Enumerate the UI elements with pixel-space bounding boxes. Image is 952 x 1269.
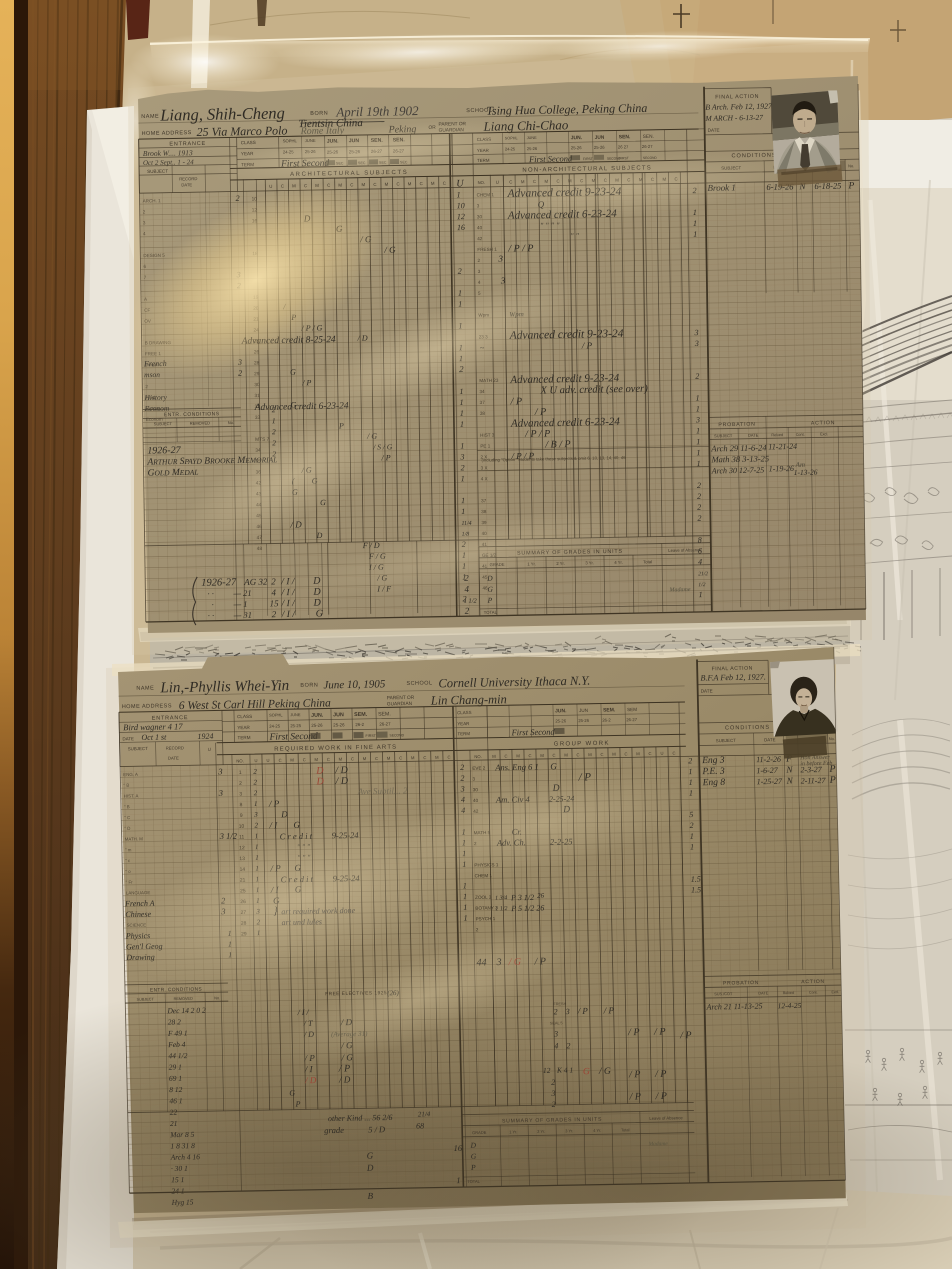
svg-text:28 2: 28 2: [168, 1017, 182, 1026]
svg-text:· 30 1: · 30 1: [171, 1164, 188, 1173]
svg-text:26-2: 26-2: [355, 722, 364, 727]
svg-text:25-25: 25-25: [290, 723, 301, 728]
svg-text:1: 1: [696, 394, 700, 403]
svg-text:3: 3: [695, 415, 700, 424]
svg-text:Arch 30 12-7-25: Arch 30 12-7-25: [711, 466, 765, 476]
svg-text:3: 3: [460, 784, 465, 793]
svg-text:1: 1: [696, 437, 700, 446]
svg-text:2: 2: [552, 1100, 556, 1109]
svg-text:M: M: [385, 182, 389, 187]
svg-text:31: 31: [254, 393, 260, 399]
svg-text:" B: " B: [124, 804, 130, 809]
svg-text:15 1: 15 1: [171, 1175, 184, 1184]
svg-text:2: 2: [688, 756, 692, 765]
svg-text:P: P: [829, 775, 836, 786]
svg-text:37: 37: [480, 400, 486, 405]
svg-text:C: C: [396, 181, 399, 186]
svg-text:Dec 14 2 0 2: Dec 14 2 0 2: [166, 1006, 206, 1016]
svg-text:C: C: [327, 757, 330, 762]
svg-text:other Kind ... 56 2/6: other Kind ... 56 2/6: [328, 1113, 393, 1123]
svg-text:P.E. 3: P.E. 3: [701, 767, 725, 777]
svg-text:2-11-27: 2-11-27: [801, 776, 827, 785]
svg-text:JUN: JUN: [333, 712, 344, 718]
svg-text:1: 1: [239, 770, 242, 776]
svg-text:SUBJECT: SUBJECT: [137, 997, 155, 1001]
svg-text:1: 1: [697, 459, 701, 468]
svg-text:B Arch. Feb 12, 1927: B Arch. Feb 12, 1927: [705, 102, 773, 112]
svg-text:History: History: [143, 393, 167, 402]
svg-text:SUS./COT: SUS./COT: [714, 992, 733, 996]
svg-text:JUN: JUN: [595, 135, 605, 141]
svg-text:SEM: SEM: [627, 707, 637, 712]
svg-text:Madame: Madame: [648, 1141, 669, 1147]
svg-text:G: G: [289, 1089, 295, 1098]
svg-text:/ P: / P: [679, 1030, 692, 1041]
svg-text:First Second: First Second: [510, 727, 555, 738]
svg-text:NAME: NAME: [136, 685, 154, 691]
svg-text:RECORD: RECORD: [166, 745, 184, 750]
svg-text:48: 48: [257, 546, 263, 552]
svg-text:3: 3: [218, 788, 223, 798]
svg-text:M: M: [612, 752, 616, 757]
svg-text:PROBATION: PROBATION: [723, 980, 759, 987]
svg-text:Tientsin China: Tientsin China: [298, 117, 363, 130]
svg-text:/ P: / P: [338, 1063, 351, 1074]
svg-text:NO.: NO.: [478, 180, 486, 185]
svg-text:25-26: 25-26: [578, 718, 589, 723]
svg-text:ACTION: ACTION: [801, 979, 825, 985]
svg-text:JUN.: JUN.: [555, 708, 567, 714]
svg-text:2: 2: [695, 372, 699, 381]
svg-text:2-3-27: 2-3-27: [800, 765, 822, 774]
svg-text:June 10, 1905: June 10, 1905: [323, 678, 386, 691]
svg-text:/ P: / P: [577, 1006, 589, 1016]
svg-text:26 27: 26 27: [618, 144, 629, 149]
svg-text:Cont.: Cont.: [796, 433, 805, 437]
svg-text:TOTAL: TOTAL: [484, 610, 498, 615]
svg-text:Arch 4 16: Arch 4 16: [170, 1152, 201, 1162]
svg-text:C: C: [420, 181, 423, 186]
svg-text:3: 3: [550, 1089, 555, 1098]
svg-text:Eng 8: Eng 8: [702, 778, 726, 788]
svg-text:4 Yr.: 4 Yr.: [593, 1128, 601, 1133]
svg-text:JUNE: JUNE: [290, 712, 301, 717]
svg-text:11-2-26: 11-2-26: [756, 755, 781, 764]
svg-text:1 8 31 8: 1 8 31 8: [170, 1141, 195, 1150]
svg-text:U: U: [660, 751, 663, 756]
svg-text:SEAL 5: SEAL 5: [550, 1021, 563, 1025]
svg-text:SCHOOL: SCHOOL: [406, 680, 432, 686]
svg-text:No.: No.: [848, 163, 854, 168]
svg-text:MATH. M: MATH. M: [125, 836, 144, 841]
svg-text:— 31: — 31: [233, 610, 252, 620]
svg-text:1 3/4: 1 3/4: [495, 894, 507, 901]
svg-text:FINAL ACTION: FINAL ACTION: [712, 666, 753, 673]
svg-text:FRESH: FRESH: [553, 1002, 566, 1006]
svg-text:Madame: Madame: [668, 587, 690, 593]
svg-text:DESIGN 5: DESIGN 5: [143, 253, 165, 258]
svg-text:DATE: DATE: [764, 737, 776, 742]
svg-text:2: 2: [272, 427, 276, 436]
svg-text:Eng 3: Eng 3: [701, 756, 725, 766]
svg-text:C: C: [423, 755, 426, 760]
svg-text:M: M: [314, 757, 318, 762]
svg-text:46 1: 46 1: [169, 1096, 182, 1105]
svg-text:16: 16: [457, 223, 465, 232]
svg-text:1: 1: [460, 409, 464, 418]
svg-text:N: N: [786, 776, 794, 786]
svg-text:SUBJECT: SUBJECT: [714, 433, 733, 438]
svg-text:Ave Subtil... 2: Ave Subtil... 2: [357, 785, 408, 796]
svg-text:GRADE: GRADE: [472, 1130, 487, 1135]
svg-text:·: ·: [212, 599, 214, 609]
svg-text:P: P: [487, 596, 493, 605]
svg-text:" o: " o: [125, 869, 131, 874]
svg-text:24-25: 24-25: [269, 723, 280, 728]
svg-text:/ P: / P: [654, 1069, 667, 1080]
svg-text:DATE: DATE: [701, 688, 713, 693]
svg-text:1-19-26: 1-19-26: [769, 464, 794, 473]
svg-text:DATE: DATE: [181, 182, 192, 187]
svg-text:1: 1: [689, 789, 693, 798]
svg-text:PSYCH 1: PSYCH 1: [476, 916, 496, 921]
svg-text:2: 2: [238, 369, 242, 378]
svg-text:25-26: 25-26: [571, 145, 582, 150]
svg-text:PROBATION: PROBATION: [718, 422, 755, 429]
svg-text:3: 3: [239, 791, 242, 797]
svg-text:46: 46: [482, 586, 488, 591]
svg-text:Brook W.... 1913: Brook W.... 1913: [143, 148, 193, 158]
svg-text:/ P / P: / P / P: [524, 428, 550, 439]
svg-text:1: 1: [461, 474, 465, 483]
svg-text:U: U: [254, 758, 257, 763]
svg-text:B.F.A Feb 12, 1927.: B.F.A Feb 12, 1927.: [700, 672, 766, 682]
svg-text:Math 38 3-13-25: Math 38 3-13-25: [710, 453, 769, 464]
svg-text:1: 1: [696, 448, 700, 457]
svg-text:HIST 3: HIST 3: [480, 432, 495, 437]
svg-text:C: C: [552, 753, 555, 758]
svg-text:C: C: [375, 756, 378, 761]
svg-text:2: 2: [697, 514, 701, 523]
svg-text:3: 3: [553, 1029, 558, 1038]
svg-text:1 1/2: 1 1/2: [495, 906, 507, 912]
svg-text:FIRST: FIRST: [583, 157, 593, 161]
svg-text:33: 33: [255, 415, 261, 421]
svg-text:2: 2: [465, 606, 470, 616]
svg-text:1: 1: [254, 800, 258, 808]
svg-text:25-26: 25-26: [527, 146, 538, 151]
svg-text:C: C: [303, 757, 306, 762]
svg-text:/ I /: / I /: [281, 610, 297, 620]
svg-text:M: M: [435, 755, 439, 760]
svg-text:26-27: 26-27: [642, 144, 653, 149]
svg-text:1: 1: [699, 590, 703, 599]
svg-text:M: M: [361, 182, 365, 187]
svg-text:NO.: NO.: [474, 754, 482, 759]
svg-text:C: C: [576, 752, 579, 757]
svg-text:JUN: JUN: [579, 708, 588, 713]
svg-text:G: G: [550, 761, 557, 771]
svg-text:mson: mson: [144, 370, 160, 379]
svg-text:12: 12: [543, 1066, 551, 1075]
svg-text:/ D: / D: [334, 765, 348, 776]
svg-text:2: 2: [461, 463, 465, 472]
svg-text:D: D: [366, 1163, 374, 1173]
svg-text:P: P: [847, 181, 854, 191]
svg-text:2: 2: [271, 576, 276, 586]
svg-text:2: 2: [235, 194, 239, 203]
svg-text:C: C: [624, 751, 627, 756]
svg-text:C: C: [351, 756, 354, 761]
svg-text:SUBJECT: SUBJECT: [154, 421, 173, 426]
svg-text:NO.: NO.: [236, 758, 244, 763]
svg-text:YEAR: YEAR: [237, 725, 250, 730]
svg-text:grade: grade: [324, 1125, 344, 1135]
svg-text:BORN: BORN: [300, 682, 318, 688]
svg-text:G: G: [316, 608, 323, 619]
svg-text:29: 29: [254, 371, 260, 377]
svg-text:Relved: Relved: [771, 433, 783, 437]
svg-text:3 Yr.: 3 Yr.: [565, 1128, 573, 1133]
svg-text:C: C: [373, 182, 376, 187]
svg-text:" Fr: " Fr: [126, 880, 134, 885]
svg-text:ENTRANCE: ENTRANCE: [169, 141, 206, 148]
svg-text:JUN.: JUN.: [571, 135, 583, 141]
svg-text:1924: 1924: [197, 732, 213, 741]
svg-text:CLASS: CLASS: [241, 140, 256, 145]
svg-text:SUBJECT: SUBJECT: [147, 169, 168, 174]
svg-text:AG 32: AG 32: [243, 577, 268, 587]
svg-text:ZOOL 3: ZOOL 3: [475, 895, 492, 900]
svg-text:FRESH 1: FRESH 1: [477, 247, 497, 252]
svg-text:SECOND: SECOND: [389, 733, 404, 737]
svg-text:25-26: 25-26: [594, 145, 605, 150]
svg-text:C: C: [399, 755, 402, 760]
svg-text:3: 3: [217, 766, 222, 776]
svg-text:TERM: TERM: [237, 735, 250, 740]
svg-text:Excl.: Excl.: [820, 432, 828, 436]
svg-text:2: 2: [254, 821, 258, 829]
svg-text:Advanced credit 6-23-24: Advanced credit 6-23-24: [510, 416, 621, 430]
svg-text:2: 2: [697, 481, 701, 490]
svg-text:2: 2: [239, 781, 242, 787]
svg-text:TOTAL: TOTAL: [467, 1179, 480, 1184]
svg-text:DATE: DATE: [708, 128, 720, 133]
svg-text:Total: Total: [643, 559, 652, 564]
svg-text:YEAR: YEAR: [457, 721, 469, 726]
svg-text:C: C: [350, 182, 353, 187]
svg-text:DATE: DATE: [122, 736, 134, 741]
svg-text:DATE: DATE: [758, 991, 768, 995]
svg-text:34: 34: [479, 389, 485, 394]
svg-text:U: U: [208, 747, 211, 752]
svg-text:8: 8: [698, 535, 702, 544]
svg-text:" B: " B: [123, 783, 129, 788]
svg-text:1: 1: [458, 289, 462, 298]
svg-text:U: U: [456, 178, 464, 189]
svg-text:M: M: [363, 756, 367, 761]
svg-text:C: C: [648, 751, 651, 756]
svg-text:4: 4: [554, 1041, 558, 1050]
svg-text:REMOVED: REMOVED: [190, 420, 210, 425]
svg-text:1 1/2: 1 1/2: [464, 598, 478, 605]
svg-text:CLASS: CLASS: [237, 714, 252, 719]
svg-text:1: 1: [272, 416, 276, 425]
svg-text:3 1/2: 3 1/2: [219, 831, 238, 841]
svg-text:D: D: [280, 809, 288, 819]
svg-text:1 Yr.: 1 Yr.: [509, 1129, 517, 1134]
svg-text:69 1: 69 1: [169, 1074, 182, 1083]
svg-text:P: P: [294, 1099, 300, 1108]
svg-text:/ G: / G: [383, 245, 396, 255]
svg-text:SUBJECT: SUBJECT: [716, 738, 736, 743]
svg-text:M: M: [411, 755, 415, 760]
svg-text:SOPHL: SOPHL: [269, 712, 283, 717]
svg-text:/ I /: / I /: [280, 588, 296, 598]
svg-text:1: 1: [461, 507, 465, 516]
svg-text:1-13-26: 1-13-26: [794, 468, 818, 477]
svg-text:1: 1: [460, 398, 464, 407]
svg-text:CONDITIONS: CONDITIONS: [725, 725, 770, 732]
svg-text:68: 68: [416, 1121, 424, 1130]
svg-text:/ P: / P: [627, 1027, 640, 1038]
svg-text:N: N: [785, 765, 793, 775]
svg-text:Cont.: Cont.: [809, 990, 818, 994]
svg-text:3: 3: [497, 254, 503, 264]
svg-text:26-27: 26-27: [379, 721, 391, 726]
svg-text:/ D: / D: [357, 333, 368, 342]
svg-text:" C: " C: [124, 815, 131, 820]
svg-text:Excl.: Excl.: [831, 990, 839, 994]
svg-text:C: C: [279, 758, 282, 763]
svg-text:G: G: [487, 585, 493, 594]
svg-text:C: C: [672, 751, 675, 756]
svg-text:Bird wagner 4 17: Bird wagner 4 17: [123, 721, 183, 732]
svg-text:1: 1: [693, 230, 697, 239]
svg-text:/ P: / P: [581, 340, 593, 350]
svg-text:P 5 1/2 26: P 5 1/2 26: [510, 903, 544, 913]
svg-text:ARCH. 1: ARCH. 1: [143, 198, 162, 203]
svg-text:38: 38: [480, 411, 486, 416]
svg-text:3: 3: [500, 275, 506, 285]
svg-text:" m: " m: [125, 847, 132, 852]
svg-text:HOME ADDRESS: HOME ADDRESS: [142, 130, 192, 137]
svg-text:3 X: 3 X: [481, 465, 488, 470]
svg-text:· ·: · ·: [207, 588, 214, 598]
svg-text:SEM.: SEM.: [354, 712, 368, 718]
svg-text:1.5: 1.5: [691, 875, 701, 884]
svg-text:1: 1: [459, 387, 463, 396]
svg-text:CLASS: CLASS: [457, 710, 472, 715]
svg-text:GUARDIAN: GUARDIAN: [387, 701, 413, 707]
svg-text:2: 2: [460, 774, 464, 783]
svg-text:25-26: 25-26: [555, 718, 566, 723]
svg-text:JUN.: JUN.: [311, 713, 324, 719]
svg-text:1: 1: [688, 767, 692, 776]
svg-text:2: 2: [253, 768, 257, 776]
svg-text:2: 2: [697, 503, 701, 512]
svg-text:/ D: / D: [338, 1074, 351, 1084]
svg-text:26-27: 26-27: [626, 717, 637, 722]
svg-text:24 1: 24 1: [171, 1186, 184, 1195]
svg-text:Leave of Absence: Leave of Absence: [649, 1115, 683, 1121]
svg-text:/ P: / P: [653, 1026, 666, 1037]
svg-text:26: 26: [537, 892, 545, 900]
svg-text:LANGUAGE: LANGUAGE: [126, 890, 151, 895]
svg-text:37: 37: [481, 498, 487, 503]
svg-text:HIST. A: HIST. A: [124, 793, 139, 798]
svg-text:/ I: / I: [304, 1064, 314, 1074]
svg-text:1: 1: [696, 426, 700, 435]
svg-text:8: 8: [240, 802, 243, 808]
svg-text:G: G: [367, 1150, 374, 1160]
svg-text:ACTION: ACTION: [811, 420, 835, 426]
svg-text:" c: " c: [125, 858, 131, 863]
svg-text:6: 6: [698, 546, 702, 555]
svg-text:2: 2: [551, 1078, 555, 1087]
svg-text:1: 1: [460, 441, 464, 450]
svg-text:M: M: [588, 752, 592, 757]
svg-text:PE 1: PE 1: [480, 443, 490, 448]
svg-text:Relved: Relved: [783, 991, 794, 995]
svg-text:G: G: [583, 1067, 590, 1077]
svg-text:Total: Total: [621, 1127, 630, 1132]
svg-text:FIRST: FIRST: [365, 734, 376, 738]
svg-text:40: 40: [477, 225, 483, 230]
svg-text:Econom: Econom: [144, 404, 170, 413]
svg-text:21/2: 21/2: [698, 571, 708, 577]
svg-text:SUBJECT: SUBJECT: [128, 746, 148, 751]
svg-text:No.: No.: [228, 420, 234, 425]
svg-text:10: 10: [239, 824, 245, 830]
svg-text:21: 21: [170, 1119, 178, 1128]
svg-text:C: C: [443, 181, 446, 186]
svg-text:Econom: Econom: [146, 417, 163, 422]
svg-text:/ P: / P: [510, 396, 523, 407]
svg-text:D: D: [315, 765, 324, 776]
svg-text:Arch 21 11-13-25: Arch 21 11-13-25: [706, 1002, 763, 1012]
svg-text:G: G: [290, 368, 296, 377]
svg-text:/ I /: / I /: [281, 599, 297, 609]
svg-text:1: 1: [689, 778, 693, 787]
svg-text:DATE: DATE: [748, 433, 759, 438]
svg-text:K 4 1: K 4 1: [556, 1065, 573, 1074]
svg-text:2: 2: [272, 609, 277, 619]
svg-text:B: B: [367, 1191, 373, 1201]
svg-text:M: M: [540, 753, 544, 758]
svg-text:RECORD: RECORD: [179, 176, 197, 181]
svg-text:1926-27: 1926-27: [147, 445, 181, 457]
svg-text:SEN.: SEN.: [643, 134, 654, 140]
svg-text:1: 1: [693, 219, 697, 228]
svg-text:4: 4: [271, 587, 276, 597]
svg-text:M ARCH - 6-13-27: M ARCH - 6-13-27: [704, 113, 763, 123]
svg-text:SEM.: SEM.: [378, 711, 391, 717]
svg-text:FINAL ACTION: FINAL ACTION: [715, 94, 759, 101]
svg-text:1: 1: [463, 914, 467, 923]
svg-text:2: 2: [566, 1041, 570, 1050]
svg-text:2: 2: [690, 821, 694, 830]
svg-text:1: 1: [456, 1175, 460, 1185]
svg-text:Hyg 15: Hyg 15: [171, 1197, 194, 1206]
svg-text:M: M: [636, 751, 640, 756]
svg-text:D: D: [469, 1141, 476, 1150]
svg-text:C: C: [528, 753, 531, 758]
svg-text:1: 1: [460, 420, 464, 429]
svg-text:DATE: DATE: [168, 755, 179, 760]
svg-text:C: C: [504, 754, 507, 759]
svg-text:2: 2: [460, 763, 464, 772]
